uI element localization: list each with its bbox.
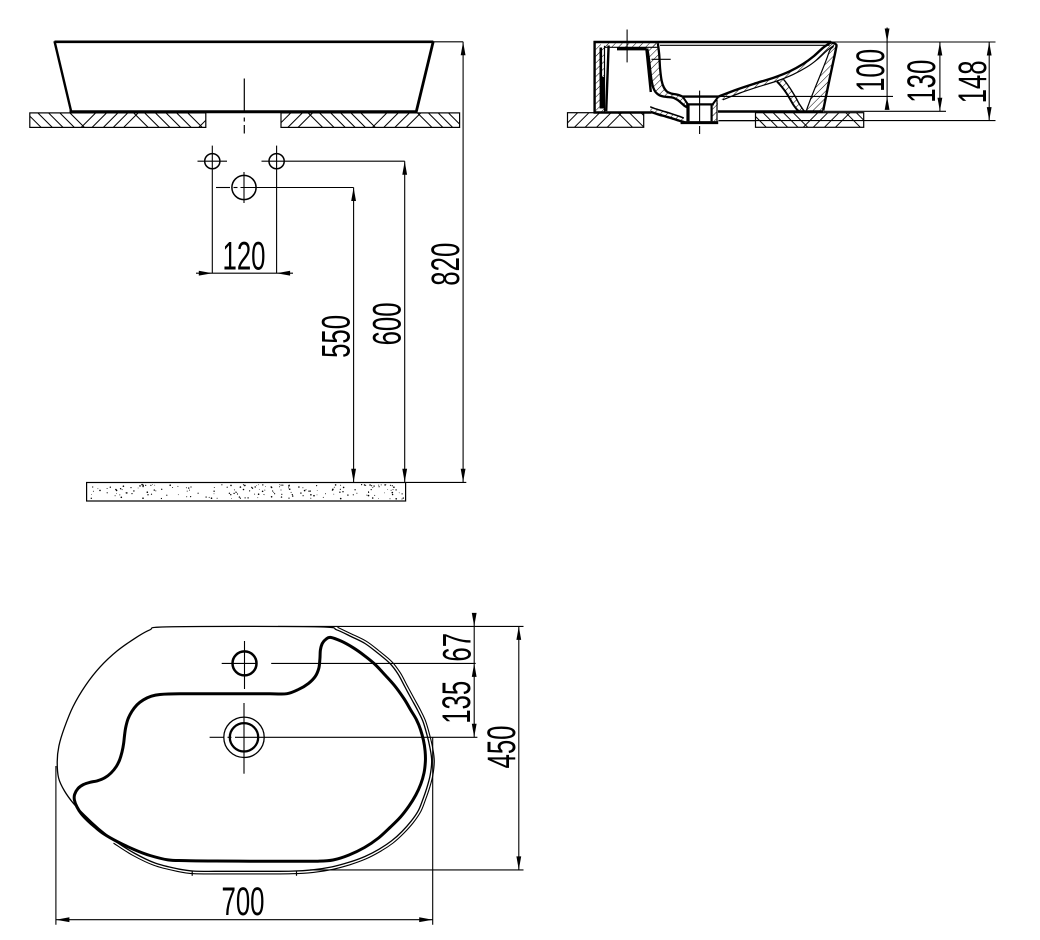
- svg-text:120: 120: [222, 235, 265, 279]
- svg-text:67: 67: [436, 633, 480, 662]
- svg-text:130: 130: [900, 60, 944, 103]
- svg-text:148: 148: [951, 60, 995, 103]
- svg-text:100: 100: [849, 49, 893, 92]
- svg-text:600: 600: [366, 302, 410, 345]
- svg-text:135: 135: [436, 681, 480, 724]
- svg-text:700: 700: [221, 880, 264, 924]
- svg-text:820: 820: [425, 243, 469, 286]
- svg-text:450: 450: [480, 725, 524, 768]
- svg-text:550: 550: [315, 315, 359, 358]
